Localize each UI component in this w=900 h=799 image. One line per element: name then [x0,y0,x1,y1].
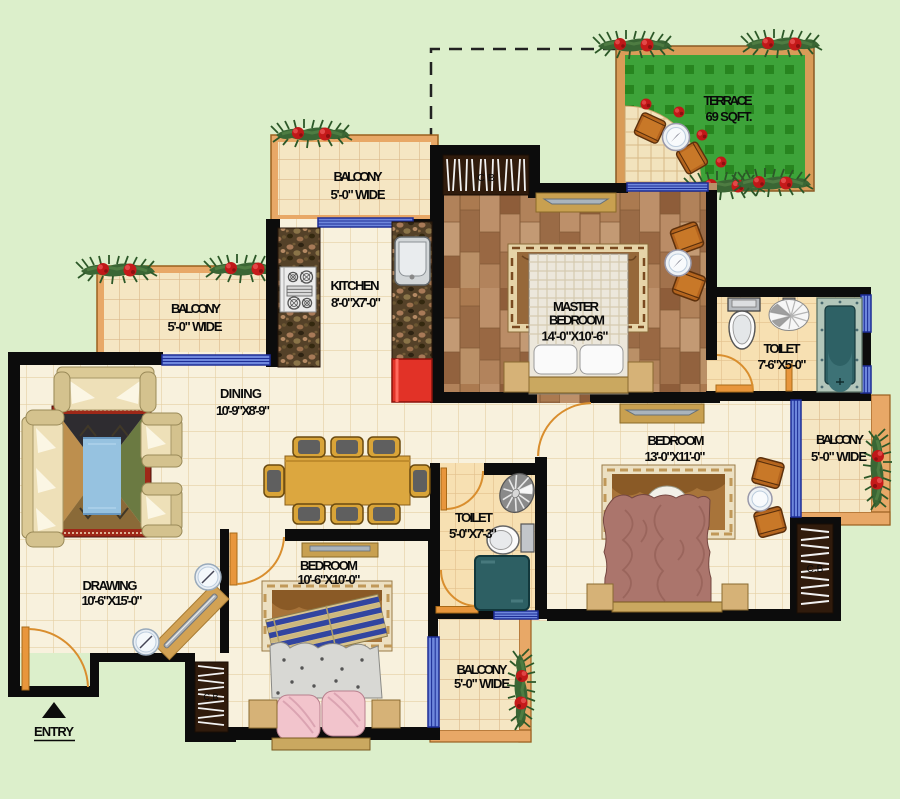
svg-text:TERRACE: TERRACE [704,93,753,108]
svg-text:KITCHEN: KITCHEN [331,278,380,293]
svg-text:DINING: DINING [220,386,262,401]
svg-text:5'-0" WIDE: 5'-0" WIDE [454,676,510,691]
svg-text:C.B: C.B [807,564,824,575]
svg-text:69 SQFT.: 69 SQFT. [706,109,753,124]
svg-text:8'-0"X7'-0": 8'-0"X7'-0" [331,295,381,310]
svg-text:BALCONY: BALCONY [457,662,508,677]
svg-text:BALCONY: BALCONY [816,432,864,447]
svg-text:BALCONY: BALCONY [334,169,383,184]
svg-text:13'-0"X11'-0": 13'-0"X11'-0" [645,449,706,464]
svg-text:5'-0" WIDE: 5'-0" WIDE [331,187,386,202]
svg-text:10'-6"X10'-0": 10'-6"X10'-0" [298,572,361,587]
svg-text:TOILET: TOILET [455,510,493,525]
svg-text:5'-0" WIDE: 5'-0" WIDE [168,319,223,334]
svg-text:5'-0"X7'-3": 5'-0"X7'-3" [449,526,497,541]
svg-text:TOILET: TOILET [764,341,801,356]
svg-text:BEDROOM: BEDROOM [648,433,705,448]
svg-text:C.B: C.B [203,692,218,702]
svg-text:7'-6"X5'-0": 7'-6"X5'-0" [758,357,807,372]
svg-text:BEDROOM: BEDROOM [300,558,358,573]
svg-text:14'-0"X10'-6": 14'-0"X10'-6" [542,329,609,344]
svg-text:DRAWING: DRAWING [83,578,138,593]
svg-text:C B: C B [477,172,495,184]
svg-text:BALCONY: BALCONY [171,301,221,316]
svg-text:5'-0" WIDE: 5'-0" WIDE [811,449,867,464]
svg-text:10'-6"X15'-0": 10'-6"X15'-0" [82,593,143,608]
svg-text:BEDROOM: BEDROOM [549,313,605,328]
svg-text:10'-9"X8'-9": 10'-9"X8'-9" [216,403,270,418]
svg-text:ENTRY: ENTRY [34,724,74,739]
